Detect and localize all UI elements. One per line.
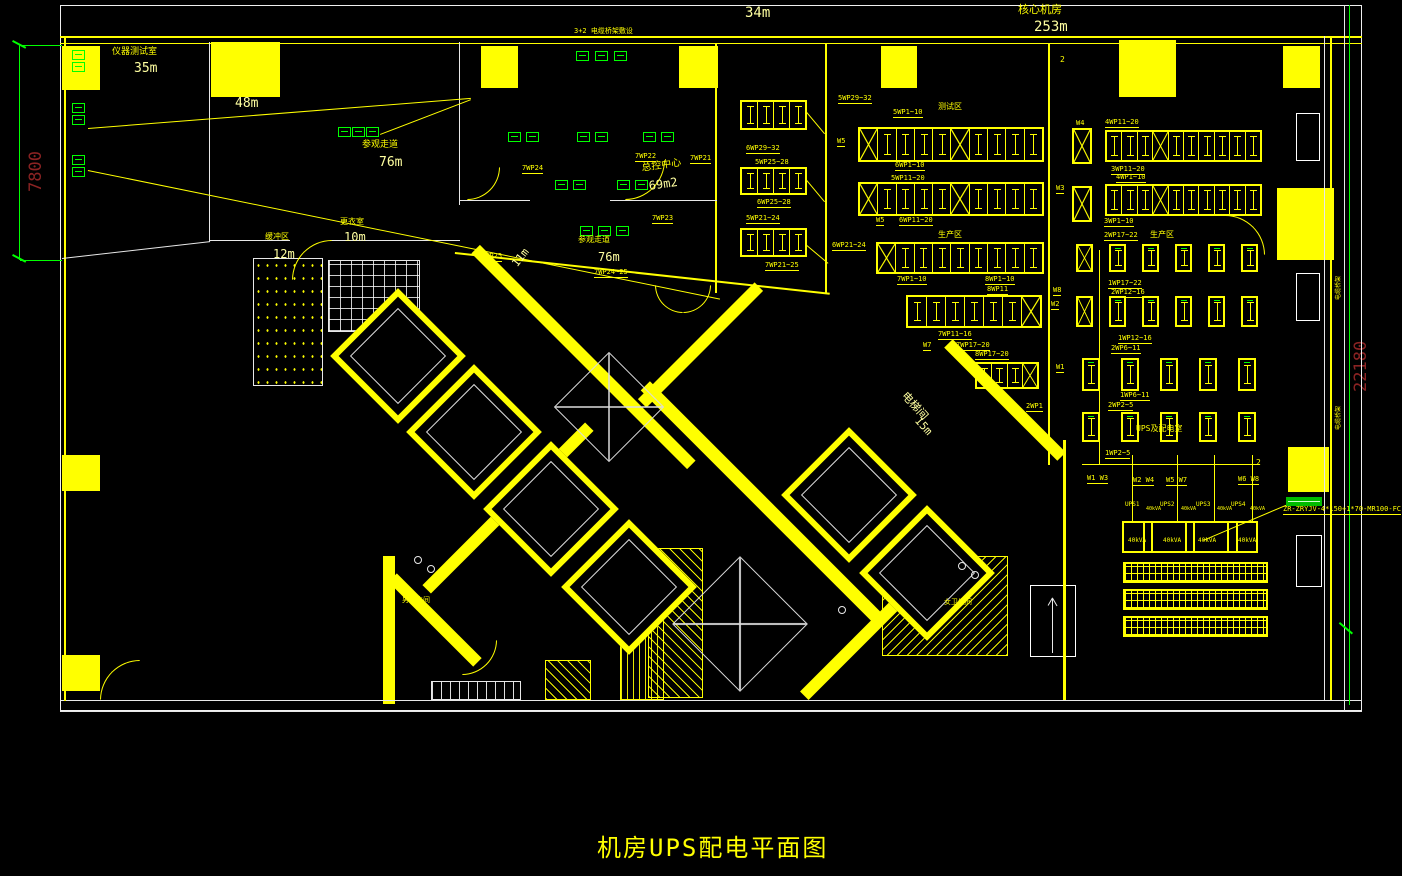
battery-symbol (1015, 368, 1016, 384)
zone-prod-right-label: 生产区 (1150, 231, 1174, 239)
feeder-label: W2 W4 (1133, 477, 1154, 486)
rack-bay (757, 102, 773, 128)
battery-symbol (1118, 302, 1119, 320)
rack-bay (789, 169, 805, 193)
feeder-label: 6WP1~10 (895, 162, 925, 171)
wall-niche (1296, 273, 1320, 321)
feeder-label: 4WP11~20 (1105, 119, 1139, 128)
rack-bay (742, 169, 757, 193)
feeder-label: 电缆桥架 (1336, 406, 1342, 430)
green-tick (1088, 416, 1094, 417)
elevator-car-outline (350, 308, 446, 404)
room-core-label: 核心机房 (1018, 4, 1062, 15)
rack-bay (1183, 132, 1198, 160)
feeder-label: 5WP29~32 (838, 95, 872, 104)
tray-note: 3+2 电缆桥架敷设 (574, 28, 633, 35)
rack-bay (1005, 184, 1023, 214)
cad-line (209, 42, 210, 242)
green-tick (1205, 416, 1211, 417)
feeder-label: UPS2 (1160, 502, 1174, 508)
cad-line (610, 200, 717, 201)
light-fixture-icon (72, 50, 85, 60)
battery-symbol (1208, 418, 1209, 436)
room-ups-label: UPS及配电室 (1136, 425, 1182, 433)
feeder-label: 76m (598, 251, 620, 263)
battery-symbol (1118, 250, 1119, 266)
battery-symbol (1191, 136, 1192, 155)
rack-bay (1137, 132, 1152, 160)
ups-divider (1193, 523, 1195, 551)
rack-bay (932, 184, 950, 214)
battery-symbol (782, 106, 783, 124)
rack-bay (1245, 186, 1260, 214)
equipment-rack-row (906, 295, 1042, 328)
light-fixture-icon (352, 127, 365, 137)
cabinet-single (1109, 296, 1126, 327)
feeder-label: W4 (1076, 120, 1084, 129)
room-buffer-label: 缓冲区 (265, 233, 289, 241)
battery-symbol (1012, 302, 1013, 322)
cad-line (1324, 36, 1325, 700)
sanitary-fixture (414, 556, 422, 564)
distribution-block (740, 100, 807, 130)
battery-symbol (936, 302, 937, 322)
green-tick (1205, 362, 1211, 363)
column (1283, 46, 1320, 88)
cabinet-single (1238, 412, 1256, 442)
battery-symbol (1130, 418, 1131, 436)
room-core-area: 253m (1034, 20, 1068, 34)
battery-symbol (984, 368, 985, 384)
cad-line (460, 200, 530, 201)
light-fixture-icon (576, 51, 589, 61)
room-buffer-area: 12m (273, 248, 295, 260)
rack-bay (757, 169, 773, 193)
feeder-label: 40kVA (1238, 538, 1256, 544)
feeder-label: 7WP21 (690, 155, 711, 164)
column (679, 46, 718, 88)
rack-bay (1021, 297, 1040, 326)
cabinet-single (1241, 296, 1258, 327)
cad-line (825, 44, 827, 293)
feeder-label: 7WP24 (522, 165, 543, 174)
feeder-label: 6WP11~20 (899, 217, 933, 226)
battery-symbol (766, 234, 767, 251)
sanitary-fixture (427, 565, 435, 573)
cad-line (60, 700, 1362, 701)
feeder-label: UPS3 (1196, 502, 1210, 508)
ups-divider (1185, 523, 1187, 551)
rack-bay (914, 244, 932, 272)
green-tick (1181, 248, 1187, 249)
rack-bay (1137, 186, 1152, 214)
cabinet-single (1199, 412, 1217, 442)
battery-symbol (999, 368, 1000, 384)
feeder-label: 8WP11 (987, 286, 1008, 295)
rack-bay (895, 244, 913, 272)
elevator-car-outline (801, 447, 897, 543)
room-toilet-men: 男卫生间 (402, 597, 430, 604)
equipment-rack-row (858, 127, 1044, 162)
cabinet-single (1076, 244, 1093, 272)
stair-hatch (545, 660, 591, 700)
cabinet-single (1199, 358, 1217, 391)
rack-bay (945, 297, 964, 326)
feeder-label: 2 (1060, 56, 1065, 64)
battery-symbol (917, 302, 918, 322)
cabinet-single (1082, 358, 1100, 391)
rack-bay (757, 230, 773, 255)
cad-line (1177, 455, 1178, 521)
feeder-label: 40kVA (1217, 507, 1232, 512)
feeder-label: UPS1 (1125, 502, 1139, 508)
rack-bay (742, 230, 757, 255)
green-tick (1115, 300, 1121, 301)
light-fixture-icon (616, 226, 629, 236)
equipment-rack-row (876, 242, 1044, 274)
rack-bay (877, 184, 895, 214)
cad-line (60, 43, 1362, 44)
light-fixture-icon (577, 132, 590, 142)
distribution-block (975, 362, 1039, 389)
battery-symbol (1151, 250, 1152, 266)
room-control-area: 69m2 (648, 176, 678, 192)
room-instrument-area: 35m (134, 62, 157, 75)
feeder-label: W2 (1051, 301, 1059, 310)
feeder-label: 40kVA (1128, 538, 1146, 544)
battery-symbol (1130, 365, 1131, 385)
feeder-label: 8WP1~10 (985, 276, 1015, 285)
battery-symbol (1250, 302, 1251, 320)
room-toilet-women: 女卫生间 (944, 599, 972, 606)
green-tick (1127, 362, 1133, 363)
feeder-label: 40kVA (1250, 507, 1265, 512)
green-tick (1244, 416, 1250, 417)
battery-symbol (766, 173, 767, 189)
feeder-label: UPS4 (1231, 502, 1245, 508)
light-fixture-icon (555, 180, 568, 190)
battery-symbol (924, 134, 925, 155)
battery-symbol (960, 248, 961, 267)
rack-bay (1007, 364, 1022, 387)
rack-bay (773, 230, 789, 255)
green-tick (1247, 300, 1253, 301)
zone-test-label: 测试区 (938, 103, 962, 111)
cad-line (64, 36, 66, 701)
battery-symbol (798, 234, 799, 251)
rack-bay (991, 364, 1006, 387)
feeder-label: 8WP17~20 (975, 351, 1009, 360)
rack-bay (969, 129, 987, 160)
cad-line (1132, 455, 1133, 521)
rack-bay (789, 102, 805, 128)
green-tick (1214, 300, 1220, 301)
rack-bay (914, 184, 932, 214)
rack-bay (950, 129, 968, 160)
cad-line (1082, 464, 1260, 465)
battery-symbol (1237, 190, 1238, 209)
rack-bay (1152, 186, 1167, 214)
rack-bay (773, 102, 789, 128)
battery-symbol (782, 234, 783, 251)
battery-symbol (923, 248, 924, 267)
sanitary-fixture (971, 571, 979, 579)
floor-plan-canvas[interactable]: 机房UPS配电平面图 7800 22180 核心机房253m34m3+2 电缆桥… (0, 0, 1402, 876)
rack-bay (1152, 132, 1167, 160)
battery-symbol (1247, 418, 1248, 436)
battery-symbol (887, 134, 888, 155)
feeder-label: W5 (876, 217, 884, 226)
feeder-label: 7WP23 (652, 215, 673, 224)
column (481, 46, 518, 88)
ups-divider (1227, 523, 1229, 551)
battery-symbol (1217, 302, 1218, 320)
rack-bay (1002, 297, 1021, 326)
battery-symbol (905, 134, 906, 155)
light-fixture-icon (366, 127, 379, 137)
light-fixture-icon (508, 132, 521, 142)
battery-symbol (1015, 134, 1016, 155)
rack-bay (1107, 132, 1121, 160)
green-tick (1166, 416, 1172, 417)
feeder-label: 1WP6~11 (1120, 392, 1150, 401)
feeder-label: 5WP21~24 (746, 215, 780, 224)
equipment-rack-row (858, 182, 1044, 216)
battery-symbol (1033, 134, 1034, 155)
feeder-label: 40kVA (1181, 507, 1196, 512)
rack-bay (1121, 132, 1136, 160)
green-tick (1088, 362, 1094, 363)
rack-bay (860, 129, 877, 160)
battery-symbol (1253, 136, 1254, 155)
elevator-car-outline (879, 525, 975, 621)
battery-symbol (942, 248, 943, 267)
cad-line (1330, 36, 1332, 700)
sanitary-fixture (838, 606, 846, 614)
room-corridor-label: 参观走道 (362, 141, 398, 150)
rack-bay (773, 169, 789, 193)
green-tick (1181, 300, 1187, 301)
feeder-label: W7 (923, 342, 931, 351)
equipment-rack-row (1105, 184, 1262, 216)
cad-line (1349, 5, 1350, 705)
battery-symbol (1114, 190, 1115, 209)
column (62, 655, 100, 691)
cabinet-single (1076, 296, 1093, 327)
light-fixture-icon (72, 115, 85, 125)
battery-symbol (766, 106, 767, 124)
feeder-label: 40kVA (1198, 538, 1216, 544)
rack-bay (1229, 186, 1244, 214)
battery-symbol (1217, 250, 1218, 266)
feeder-label: 7WP21~25 (765, 262, 799, 271)
battery-symbol (1091, 365, 1092, 385)
feeder-label: 7WP22 (635, 153, 656, 162)
feeder-label: 1WP2~5 (1105, 450, 1130, 459)
rack-bay (987, 129, 1005, 160)
light-fixture-icon (595, 51, 608, 61)
feeder-label: W6 W8 (1238, 476, 1259, 485)
feeder-label: 40kVA (1163, 538, 1181, 544)
battery-symbol (1033, 248, 1034, 267)
cabinet-single (1160, 358, 1178, 391)
battery-symbol (1145, 136, 1146, 155)
rack-bay (1005, 244, 1023, 272)
room-corridor-area: 76m (379, 156, 402, 169)
cabinet-single (1109, 244, 1126, 272)
green-tick (1148, 248, 1154, 249)
rack-bay (987, 244, 1005, 272)
cad-line (60, 711, 1362, 712)
distribution-block (740, 167, 807, 195)
battery-symbol (1222, 190, 1223, 209)
room-dressing-label: 更衣室 (340, 218, 364, 226)
rack-bay (908, 297, 926, 326)
feeder-label: 7WP25 (481, 253, 502, 262)
column (211, 42, 280, 97)
battery-symbol (955, 302, 956, 322)
feeder-box (1072, 186, 1092, 222)
rack-bay (969, 184, 987, 214)
battery-symbol (1114, 136, 1115, 155)
battery-symbol (978, 134, 979, 155)
feeder-label: 5WP25~28 (755, 159, 789, 168)
feeder-box (1072, 128, 1092, 164)
feeder-label: 1WP12~16 (1118, 335, 1152, 344)
feeder-label: W1 (1056, 364, 1064, 373)
wall-niche (1296, 535, 1322, 587)
light-fixture-icon (614, 51, 627, 61)
battery-symbol (1169, 365, 1170, 385)
battery-symbol (798, 173, 799, 189)
battery-symbol (1237, 136, 1238, 155)
rack-bay (1005, 129, 1023, 160)
rack-bay (1024, 244, 1042, 272)
cad-line (20, 45, 62, 46)
cad-line (459, 42, 460, 205)
battery-symbol (1033, 189, 1034, 209)
rack-bay (742, 102, 757, 128)
cad-line (19, 45, 20, 260)
rack-bay (1245, 132, 1260, 160)
equipment-rack-row (1105, 130, 1262, 162)
battery-symbol (798, 106, 799, 124)
rack-bay (932, 244, 950, 272)
rack-bay (896, 184, 914, 214)
rack-bay (789, 230, 805, 255)
battery-symbol (942, 134, 943, 155)
battery-symbol (1207, 190, 1208, 209)
dimension-left: 7800 (28, 151, 45, 192)
cad-line (715, 44, 717, 293)
rack-bay (926, 297, 945, 326)
rack-bay (914, 129, 932, 160)
cad-line (1288, 501, 1320, 502)
feeder-label: 7WP1~10 (897, 276, 927, 285)
rack-bay (1024, 184, 1042, 214)
light-fixture-icon (573, 180, 586, 190)
rack-bay (1107, 186, 1121, 214)
light-fixture-icon (526, 132, 539, 142)
light-fixture-icon (72, 167, 85, 177)
green-tick (1244, 362, 1250, 363)
light-fixture-icon (72, 62, 85, 72)
sanitary-fixture (958, 562, 966, 570)
green-tick (1127, 416, 1133, 417)
battery-symbol (1015, 248, 1016, 267)
battery-symbol (924, 189, 925, 209)
battery-symbol (905, 189, 906, 209)
column (1288, 447, 1329, 492)
green-tick (1214, 248, 1220, 249)
cabinet-single (1208, 244, 1225, 272)
room-top-area: 34m (745, 6, 770, 20)
rack-bay (1024, 129, 1042, 160)
battery-symbol (1191, 190, 1192, 209)
battery-symbol (1253, 190, 1254, 209)
feeder-label: 电缆桥架 (1336, 276, 1342, 300)
battery-symbol (1176, 136, 1177, 155)
wall-niche (1296, 113, 1320, 161)
battery-symbol (1207, 136, 1208, 155)
battery-symbol (997, 248, 998, 267)
column (1119, 40, 1176, 97)
rack-bay (950, 184, 968, 214)
battery-symbol (1130, 190, 1131, 209)
rack-bay (987, 184, 1005, 214)
battery-symbol (993, 302, 994, 322)
light-fixture-icon (338, 127, 351, 137)
battery-symbol (978, 189, 979, 209)
cabinet-single (1175, 244, 1192, 272)
column (881, 46, 917, 88)
battery-symbol (887, 189, 888, 209)
stair-treads (431, 681, 521, 700)
column (1277, 188, 1334, 260)
room-48-area: 48m (235, 97, 258, 110)
feeder-label: W8 (1053, 287, 1061, 296)
drawing-title: 机房UPS配电平面图 (597, 836, 828, 860)
battery-rack (1123, 616, 1268, 637)
feeder-label: 4WP1~10 (1116, 174, 1146, 183)
ups-divider (1151, 523, 1153, 551)
room-instrument-label: 仪器测试室 (112, 48, 157, 57)
cad-line (60, 36, 1362, 38)
feeder-label: 2 (1256, 459, 1261, 467)
cad-line (1063, 440, 1066, 700)
rack-bay (977, 364, 991, 387)
elevator-car-outline (503, 461, 599, 557)
cad-line (1052, 598, 1053, 653)
rack-bay (1022, 364, 1037, 387)
light-fixture-icon (595, 132, 608, 142)
battery-symbol (1184, 250, 1185, 266)
rack-bay (1168, 186, 1183, 214)
feeder-label: W5 (837, 138, 845, 147)
battery-symbol (1145, 190, 1146, 209)
room-dressing-area: 10m (344, 231, 366, 243)
feeder-label: W3 (1056, 185, 1064, 194)
rack-bay (877, 129, 895, 160)
battery-symbol (942, 189, 943, 209)
rack-bay (983, 297, 1002, 326)
rack-bay (1198, 186, 1213, 214)
rack-bay (896, 129, 914, 160)
rack-bay (1121, 186, 1136, 214)
rack-bay (1198, 132, 1213, 160)
battery-symbol (1247, 365, 1248, 385)
battery-symbol (1130, 136, 1131, 155)
